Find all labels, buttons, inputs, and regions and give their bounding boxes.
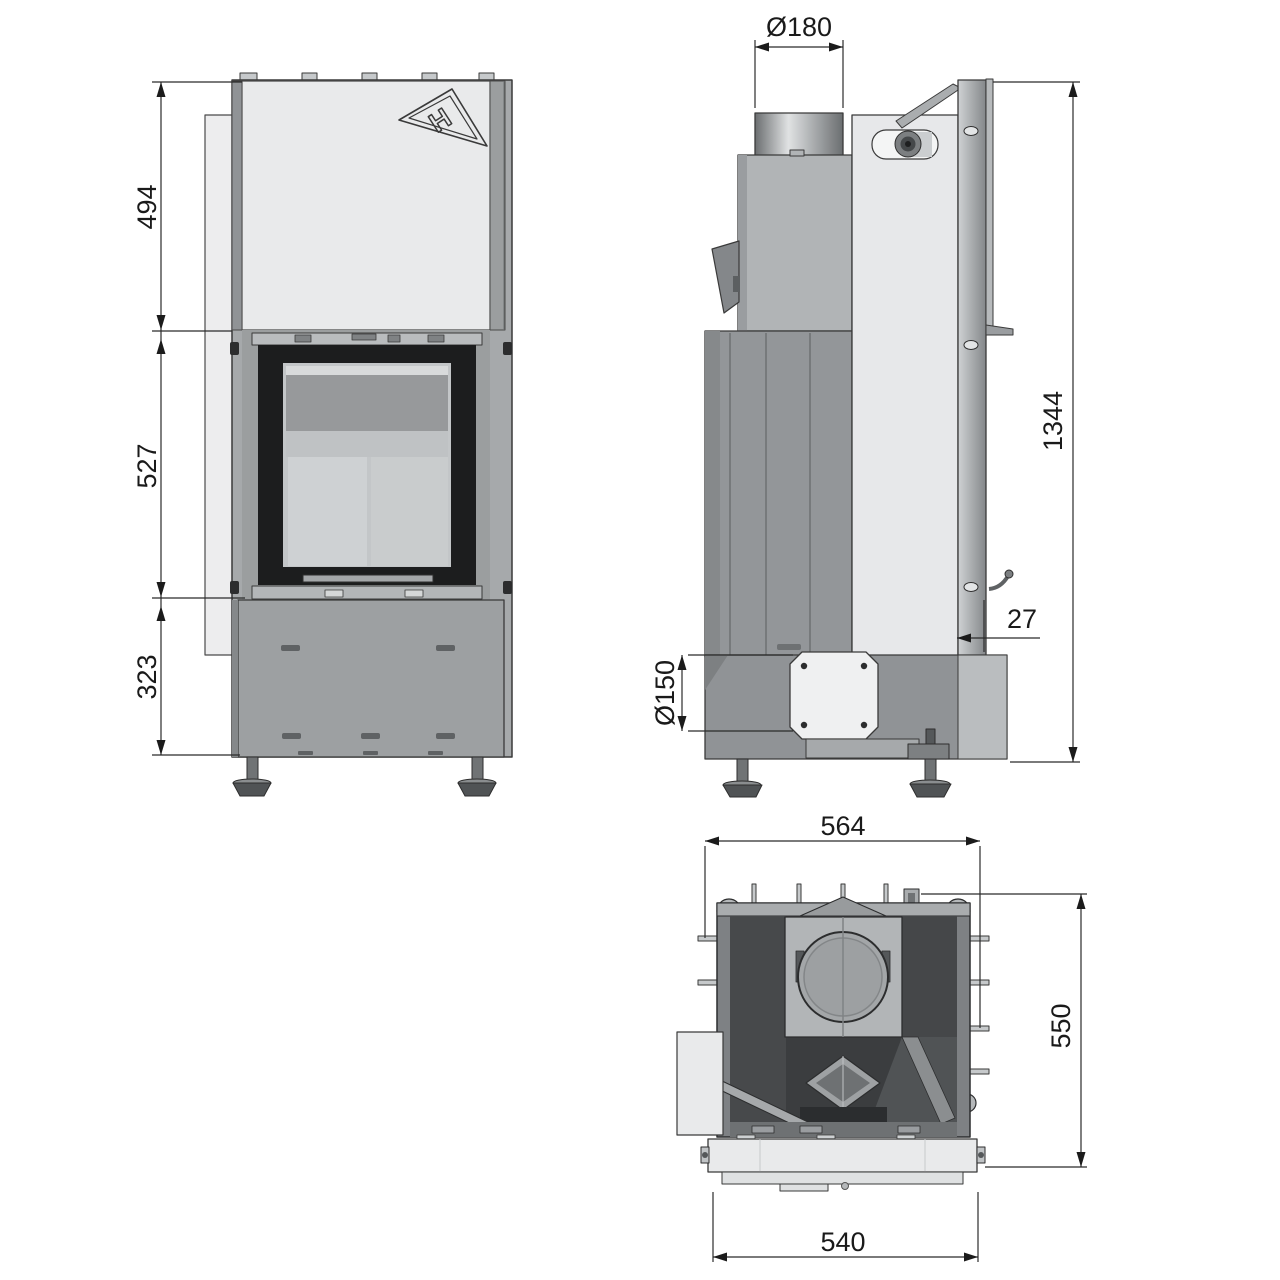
- adjustable-feet-front: [233, 757, 496, 796]
- side-view: [705, 79, 1013, 797]
- air-inlet-plate: [790, 652, 878, 739]
- front-frame-plan: [701, 1135, 985, 1191]
- top-view: [677, 884, 989, 1191]
- front-frame-side: [852, 115, 958, 657]
- dim-label-front-upper-height: 494: [132, 147, 162, 267]
- dim-label-front-base-height: 323: [132, 617, 162, 737]
- dim-label-frame-offset: 27: [962, 604, 1082, 634]
- door-lift-mechanism: [872, 130, 938, 159]
- dim-label-overall-width: 564: [783, 811, 903, 841]
- top-cover-panel: [242, 81, 490, 330]
- dim-label-overall-height: 1344: [1038, 361, 1068, 481]
- dim-label-overall-depth: 550: [1046, 966, 1076, 1086]
- wall-rail: [986, 79, 993, 331]
- dim-label-flue-diameter: Ø180: [739, 12, 859, 42]
- dim-label-front-width: 540: [783, 1227, 903, 1257]
- dim-label-air-inlet-diameter: Ø150: [650, 633, 680, 753]
- flue-opening-top: [785, 917, 902, 1037]
- front-frame-bar: [958, 80, 986, 658]
- technical-drawing-page: H: [0, 0, 1280, 1280]
- rear-panel-edge: [205, 115, 233, 655]
- front-view: H: [205, 73, 512, 796]
- door-handle-side: [989, 570, 1013, 589]
- fireplace-insert-drawing: H: [0, 0, 1280, 1280]
- heat-exchanger-panel: [705, 331, 852, 657]
- dim-label-front-glass-height: 527: [132, 406, 162, 526]
- smoke-chamber: [738, 155, 852, 331]
- side-trim-panel-plan: [677, 1032, 723, 1135]
- door-handle-bar: [303, 575, 433, 582]
